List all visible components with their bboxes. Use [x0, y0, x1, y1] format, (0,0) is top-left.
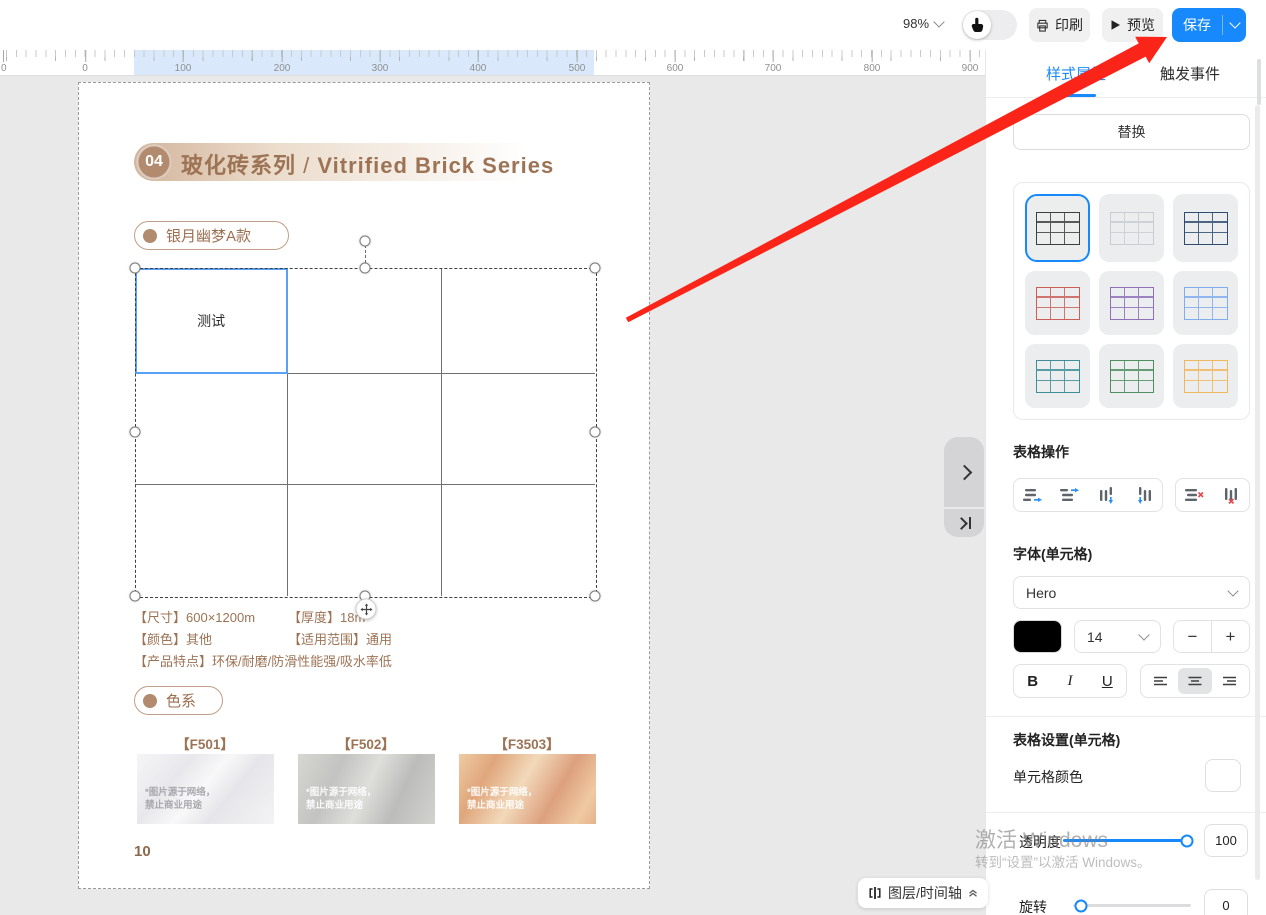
- ruler-label: 800: [864, 63, 881, 74]
- table-style-icon: [1110, 212, 1154, 245]
- rotate-slider-track[interactable]: [1073, 904, 1191, 907]
- cell-color-label: 单元格颜色: [1013, 767, 1083, 787]
- hand-tool-toggle[interactable]: [962, 10, 1017, 40]
- zoom-value: 98%: [903, 16, 929, 31]
- ruler-label: 700: [765, 63, 782, 74]
- table-style-icon: [1184, 360, 1228, 393]
- swatch-code: 【F502】: [337, 733, 395, 753]
- rotate-label: 旋转: [1019, 897, 1047, 915]
- table-style-icon: [1110, 287, 1154, 320]
- table-ops-title: 表格操作: [1013, 442, 1069, 462]
- play-icon: [1110, 19, 1121, 31]
- zoom-control[interactable]: 98%: [903, 16, 943, 31]
- ruler-label: 500: [569, 63, 586, 74]
- align-left-button[interactable]: [1144, 668, 1178, 694]
- swatch-image: *图片源于网络，禁止商业用途: [459, 754, 596, 824]
- table[interactable]: 测试: [135, 268, 595, 596]
- collapse-to-edge-button[interactable]: [944, 509, 984, 537]
- insert-column-left-button[interactable]: [1088, 486, 1125, 504]
- layers-timeline-label: 图层/时间轴: [888, 883, 962, 903]
- font-section-title: 字体(单元格): [1013, 544, 1092, 564]
- series-badge-label: 银月幽梦A款: [166, 225, 251, 246]
- printer-icon: [1036, 19, 1049, 32]
- side-panel-buttons: [944, 437, 984, 537]
- color-series-label: 色系: [166, 690, 196, 711]
- table-cell[interactable]: [442, 485, 595, 596]
- badge-dot-icon: [143, 694, 157, 708]
- insert-row-above-button[interactable]: [1014, 487, 1051, 503]
- spec-value: 环保/耐磨/防滑性能强/吸水率低: [212, 654, 392, 669]
- spec-line: 【颜色】其他: [134, 629, 212, 648]
- table-cell[interactable]: [442, 374, 595, 485]
- table-style-icon: [1036, 287, 1080, 320]
- swatch-image: *图片源于网络，禁止商业用途: [298, 754, 435, 824]
- table-style-option[interactable]: [1099, 271, 1164, 335]
- divider: [986, 716, 1266, 717]
- swatch-watermark: *图片源于网络，禁止商业用途: [306, 786, 376, 813]
- chevron-down-icon: [1227, 585, 1238, 596]
- ruler-label: 0: [1, 63, 7, 74]
- table-cell[interactable]: [288, 374, 441, 485]
- expand-panel-button[interactable]: [944, 437, 984, 507]
- page-title: 玻化砖系列 / Vitrified Brick Series: [181, 148, 554, 180]
- title-zh: 玻化砖系列: [181, 153, 296, 178]
- horizontal-ruler: 0 0 100 200 300 400 500 600 700 800 900: [0, 50, 985, 76]
- table-style-icon: [1110, 360, 1154, 393]
- swatch-code: 【F501】: [176, 733, 234, 753]
- insert-column-right-button[interactable]: [1125, 486, 1162, 504]
- chevron-right-icon: [955, 517, 968, 530]
- print-button[interactable]: 印刷: [1029, 8, 1090, 42]
- swatch-watermark: *图片源于网络，禁止商业用途: [467, 786, 537, 813]
- tab-trigger-events[interactable]: 触发事件: [1160, 63, 1220, 84]
- ruler-label: 900: [962, 63, 979, 74]
- save-label: 保存: [1172, 15, 1222, 35]
- insert-row-below-button[interactable]: [1051, 487, 1088, 503]
- spec-key: 【适用范围】: [288, 632, 366, 647]
- ruler-label: 100: [175, 63, 192, 74]
- ruler-label: 300: [372, 63, 389, 74]
- replace-button[interactable]: 替换: [1013, 114, 1250, 150]
- rotation-handle[interactable]: [360, 236, 371, 247]
- swatch-code: 【F3503】: [494, 733, 559, 753]
- divider: [986, 97, 1266, 98]
- ruler-label: 200: [274, 63, 291, 74]
- table-style-icon: [1036, 360, 1080, 393]
- spec-key: 【厚度】: [288, 610, 340, 625]
- page-number: 10: [134, 843, 151, 860]
- rotate-value[interactable]: 0: [1204, 889, 1248, 915]
- delete-row-button[interactable]: [1176, 487, 1213, 503]
- spec-value: 其他: [186, 632, 212, 647]
- selection-handle[interactable]: [360, 263, 371, 274]
- ruler-label: 600: [667, 63, 684, 74]
- font-size-select[interactable]: 14: [1074, 620, 1161, 653]
- table-cell[interactable]: [135, 374, 288, 485]
- ruler-label: 0: [82, 63, 88, 74]
- properties-panel: 样式属性 触发事件 替换 表格操作: [985, 50, 1266, 915]
- preview-label: 预览: [1127, 15, 1155, 35]
- delete-column-button[interactable]: [1213, 486, 1250, 504]
- spec-key: 【尺寸】: [134, 610, 186, 625]
- spec-key: 【产品特点】: [134, 654, 212, 669]
- swatch-watermark: *图片源于网络，禁止商业用途: [145, 786, 215, 813]
- chevron-down-icon: [1229, 17, 1240, 28]
- spec-value: 600×1200m: [186, 610, 255, 625]
- save-button[interactable]: 保存: [1172, 8, 1246, 42]
- opacity-slider-track[interactable]: [1063, 839, 1191, 842]
- selection-handle[interactable]: [130, 591, 141, 602]
- swatch-image: *图片源于网络，禁止商业用途: [137, 754, 274, 824]
- underline-button[interactable]: U: [1089, 665, 1126, 697]
- chevron-down-icon: [1138, 629, 1149, 640]
- selection-handle[interactable]: [130, 427, 141, 438]
- tab-style-properties[interactable]: 样式属性: [1046, 63, 1106, 84]
- color-series-badge: 色系: [134, 686, 223, 715]
- panel-scrollbar[interactable]: [1255, 105, 1260, 880]
- align-center-button[interactable]: [1178, 668, 1212, 694]
- title-number-badge: 04: [136, 144, 172, 180]
- table-cell[interactable]: 测试: [135, 268, 288, 374]
- badge-dot-icon: [143, 229, 157, 243]
- toolbar: 98% 印刷 预览 保存: [0, 0, 1266, 50]
- move-handle[interactable]: [356, 599, 377, 620]
- table-ops-delete-group: [1175, 478, 1250, 512]
- table-style-option[interactable]: [1173, 194, 1238, 262]
- font-size-stepper: − +: [1173, 620, 1250, 653]
- opacity-value[interactable]: 100: [1204, 824, 1248, 857]
- spec-line: 【产品特点】环保/耐磨/防滑性能强/吸水率低: [134, 651, 392, 670]
- spec-line: 【尺寸】600×1200m: [134, 607, 255, 626]
- align-right-button[interactable]: [1212, 668, 1246, 694]
- layers-timeline-button[interactable]: 图层/时间轴: [858, 878, 988, 908]
- hand-icon: [970, 17, 984, 33]
- increase-font-button[interactable]: +: [1212, 621, 1249, 652]
- table-style-option[interactable]: [1099, 344, 1164, 408]
- table-style-option[interactable]: [1025, 271, 1090, 335]
- chevron-right-icon: [956, 464, 972, 480]
- text-style-group: B I U: [1013, 664, 1127, 698]
- gallery-scrollbar[interactable]: [1257, 59, 1261, 105]
- print-label: 印刷: [1055, 15, 1083, 35]
- chevron-down-icon: [933, 16, 944, 27]
- opacity-label: 透明度: [1019, 832, 1061, 852]
- table-style-gallery: [1013, 182, 1250, 420]
- selection-handle[interactable]: [590, 591, 601, 602]
- editor-window: 98% 印刷 预览 保存: [0, 0, 1266, 915]
- spec-line: 【厚度】18m: [288, 607, 365, 626]
- layers-timeline-icon: [868, 886, 882, 900]
- table-cell[interactable]: [135, 485, 288, 596]
- table-style-icon: [1184, 212, 1228, 245]
- table-style-option[interactable]: [1099, 194, 1164, 262]
- text-align-group: [1140, 664, 1250, 698]
- table-settings-title: 表格设置(单元格): [1013, 730, 1120, 750]
- move-icon: [360, 603, 372, 615]
- ruler-label: 400: [470, 63, 487, 74]
- font-color-swatch[interactable]: [1013, 620, 1062, 653]
- table-style-option[interactable]: [1173, 271, 1238, 335]
- divider: [986, 812, 1266, 813]
- selection-handle[interactable]: [590, 263, 601, 274]
- spec-line: 【适用范围】通用: [288, 629, 392, 648]
- hand-tool-knob: [963, 11, 991, 39]
- selection-handle[interactable]: [130, 263, 141, 274]
- title-separator: /: [303, 153, 310, 178]
- rotate-slider-knob[interactable]: [1075, 899, 1088, 912]
- italic-button[interactable]: I: [1051, 665, 1088, 697]
- table-cell[interactable]: [288, 485, 441, 596]
- title-en: Vitrified Brick Series: [317, 153, 554, 178]
- canvas-page[interactable]: 04 玻化砖系列 / Vitrified Brick Series 银月幽梦A款…: [78, 82, 650, 889]
- table-ops-insert-group: [1013, 478, 1163, 512]
- bold-button[interactable]: B: [1014, 665, 1051, 697]
- decrease-font-button[interactable]: −: [1174, 621, 1212, 652]
- ruler-ticks: [0, 50, 985, 75]
- table-cell[interactable]: [442, 268, 595, 374]
- selection-handle[interactable]: [590, 427, 601, 438]
- spec-value: 通用: [366, 632, 392, 647]
- series-badge: 银月幽梦A款: [134, 221, 289, 250]
- double-chevron-up-icon: [968, 888, 978, 898]
- font-family-value: Hero: [1026, 585, 1056, 601]
- cell-color-swatch[interactable]: [1205, 759, 1241, 792]
- font-size-value: 14: [1087, 629, 1103, 645]
- table-style-option[interactable]: [1025, 344, 1090, 408]
- table-style-option[interactable]: [1025, 194, 1090, 262]
- table-style-icon: [1036, 212, 1080, 245]
- preview-button[interactable]: 预览: [1102, 8, 1163, 42]
- save-dropdown[interactable]: [1223, 23, 1246, 27]
- opacity-slider-knob[interactable]: [1181, 834, 1194, 847]
- spec-key: 【颜色】: [134, 632, 186, 647]
- table-style-option[interactable]: [1173, 344, 1238, 408]
- font-family-select[interactable]: Hero: [1013, 576, 1250, 609]
- table-style-icon: [1184, 287, 1228, 320]
- table-cell[interactable]: [288, 268, 441, 374]
- bar-icon: [969, 517, 971, 529]
